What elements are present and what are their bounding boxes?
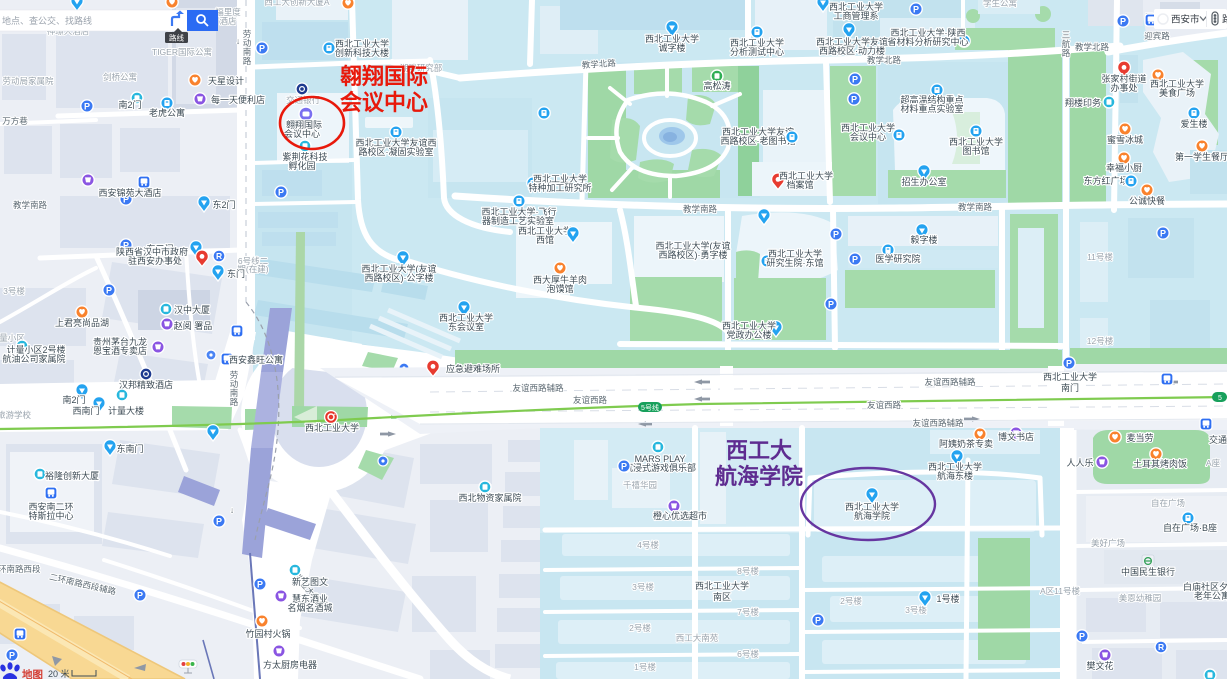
- svg-text:1号楼: 1号楼: [634, 662, 656, 672]
- svg-text:分析测试中心: 分析测试中心: [730, 46, 784, 57]
- svg-text:路: 路: [1222, 14, 1227, 26]
- svg-text:6号楼: 6号楼: [737, 649, 759, 659]
- svg-text:西路校区)·公字楼: 西路校区)·公字楼: [365, 272, 434, 283]
- svg-text:党政办公楼: 党政办公楼: [726, 329, 771, 340]
- svg-text:↓: ↓: [230, 505, 234, 515]
- svg-text:土耳其烤肉饭: 土耳其烤肉饭: [1133, 458, 1187, 469]
- svg-text:东2门: 东2门: [212, 199, 235, 210]
- svg-text:会议中心: 会议中心: [340, 90, 428, 115]
- svg-text:名烟名酒城: 名烟名酒城: [287, 602, 332, 613]
- svg-text:12号楼: 12号楼: [1087, 336, 1114, 346]
- svg-text:南门: 南门: [1061, 382, 1079, 393]
- svg-text:友谊西路辅路: 友谊西路辅路: [912, 418, 964, 428]
- svg-text:地点、查公交、找路线: 地点、查公交、找路线: [2, 15, 92, 26]
- svg-text:赵阅 署品: 赵阅 署品: [174, 320, 213, 331]
- svg-text:美恩幼稚园: 美恩幼稚园: [1119, 593, 1162, 603]
- svg-text:万方巷: 万方巷: [2, 116, 28, 126]
- svg-text:人人乐: 人人乐: [1066, 457, 1093, 468]
- svg-text:路线: 路线: [169, 33, 184, 43]
- svg-text:学生公寓: 学生公寓: [983, 0, 1017, 8]
- svg-text:2号楼: 2号楼: [629, 623, 651, 633]
- svg-text:教学南路: 教学南路: [683, 204, 718, 214]
- svg-text:汉中大厦: 汉中大厦: [174, 304, 210, 315]
- svg-text:友谊西路辅路: 友谊西路辅路: [512, 383, 564, 393]
- svg-text:地图: 地图: [22, 668, 43, 679]
- svg-text:竹园村火锅: 竹园村火锅: [245, 628, 290, 639]
- svg-text:蜜雪冰城: 蜜雪冰城: [1107, 134, 1143, 145]
- svg-text:航海东楼: 航海东楼: [937, 470, 973, 481]
- svg-text:8号楼: 8号楼: [737, 566, 759, 576]
- svg-text:友谊西路: 友谊西路: [573, 395, 608, 405]
- svg-text:东门: 东门: [227, 268, 245, 279]
- svg-text:工商管理系: 工商管理系: [833, 10, 878, 21]
- svg-text:劳动局家属院: 劳动局家属院: [2, 76, 54, 86]
- svg-text:图书馆: 图书馆: [962, 145, 989, 156]
- svg-text:TIGER国际公寓: TIGER国际公寓: [152, 47, 212, 57]
- svg-text:4号楼: 4号楼: [637, 540, 659, 550]
- svg-text:办事处: 办事处: [1110, 82, 1137, 93]
- svg-text:驻西安办事处: 驻西安办事处: [128, 255, 182, 266]
- svg-text:教学北路: 教学北路: [1075, 42, 1110, 52]
- svg-text:东方红广场: 东方红广场: [1083, 175, 1128, 186]
- svg-text:西路校区·动力楼: 西路校区·动力楼: [819, 45, 885, 56]
- svg-text:橙心优选超市: 橙心优选超市: [653, 510, 707, 521]
- svg-text:公诚快餐: 公诚快餐: [1129, 195, 1165, 206]
- svg-text:翔楼印务: 翔楼印务: [1065, 97, 1101, 108]
- svg-text:每一天便利店: 每一天便利店: [211, 94, 265, 105]
- svg-text:孵化园: 孵化园: [288, 160, 315, 171]
- svg-text:劳动南路: 劳动南路: [230, 370, 239, 407]
- svg-text:博文书店: 博文书店: [998, 431, 1034, 442]
- svg-text:1号楼: 1号楼: [936, 593, 959, 604]
- svg-text:迎宾路: 迎宾路: [1144, 31, 1170, 41]
- svg-text:会议中心: 会议中心: [284, 128, 320, 139]
- svg-text:教学南路: 教学南路: [13, 200, 48, 210]
- svg-text:3号楼: 3号楼: [3, 286, 25, 296]
- svg-text:特种加工研究所: 特种加工研究所: [528, 182, 591, 193]
- svg-text:应急避难场所: 应急避难场所: [446, 363, 500, 374]
- svg-text:友谊西路辅路: 友谊西路辅路: [924, 377, 976, 387]
- svg-text:↓: ↓: [236, 36, 240, 46]
- svg-text:西安锦苑大酒店: 西安锦苑大酒店: [98, 187, 161, 198]
- svg-text:西路校区)·勇字楼: 西路校区)·勇字楼: [659, 249, 728, 260]
- svg-text:20 米: 20 米: [48, 668, 70, 679]
- svg-text:航油公司家属院: 航油公司家属院: [2, 353, 65, 364]
- svg-text:11号楼: 11号楼: [1087, 252, 1113, 262]
- svg-text:教学南路: 教学南路: [958, 202, 993, 212]
- svg-text:招生办公室: 招生办公室: [901, 176, 946, 187]
- svg-text:中国民生银行: 中国民生银行: [1121, 566, 1175, 577]
- svg-text:第一学生餐厅: 第一学生餐厅: [1175, 151, 1227, 162]
- svg-text:航海学院: 航海学院: [715, 464, 803, 489]
- svg-text:爱生楼: 爱生楼: [1180, 118, 1207, 129]
- svg-text:档案馆: 档案馆: [786, 179, 813, 190]
- svg-text:西北工业大学: 西北工业大学: [305, 422, 359, 433]
- svg-text:上君亮尚品湖: 上君亮尚品湖: [55, 317, 109, 328]
- svg-text:阿姨奶茶专卖: 阿姨奶茶专卖: [939, 438, 993, 449]
- svg-text:新艺图文: 新艺图文: [292, 576, 328, 587]
- svg-text:7号楼: 7号楼: [737, 607, 759, 617]
- svg-text:研究生院·东馆: 研究生院·东馆: [767, 257, 824, 268]
- svg-text:泡馍馆: 泡馍馆: [546, 283, 573, 294]
- svg-text:毅字楼: 毅字楼: [910, 234, 937, 245]
- svg-text:特斯拉中心: 特斯拉中心: [28, 510, 73, 521]
- svg-text:A区11号楼: A区11号楼: [1040, 586, 1080, 596]
- svg-text:西安市: 西安市: [1171, 14, 1200, 26]
- svg-text:材料重点实验室: 材料重点实验室: [900, 103, 963, 114]
- svg-text:创新科技大楼: 创新科技大楼: [335, 47, 389, 58]
- svg-text:航海学院: 航海学院: [854, 510, 890, 521]
- svg-text:方太厨房电器: 方太厨房电器: [263, 659, 317, 670]
- svg-text:省材料分析研究中心: 省材料分析研究中心: [887, 36, 968, 47]
- svg-text:计量大楼: 计量大楼: [108, 405, 144, 416]
- svg-text:器制造工艺实验室: 器制造工艺实验室: [482, 215, 554, 226]
- svg-text:翱翔国际: 翱翔国际: [340, 64, 428, 89]
- svg-text:诚字楼: 诚字楼: [658, 42, 685, 53]
- svg-text:酒店: 酒店: [219, 16, 237, 26]
- svg-text:裕隆创新大厦: 裕隆创新大厦: [45, 470, 99, 481]
- svg-text:美好广场: 美好广场: [1091, 538, 1125, 548]
- svg-text:东会议室: 东会议室: [448, 321, 484, 332]
- svg-text:东南门: 东南门: [116, 443, 143, 454]
- svg-text:南2门: 南2门: [118, 99, 141, 110]
- svg-text:西北物资家属院: 西北物资家属院: [458, 492, 521, 503]
- svg-text:西工大南苑: 西工大南苑: [676, 633, 719, 643]
- svg-text:二环南路西段: 二环南路西段: [0, 564, 41, 574]
- svg-text:麦当劳: 麦当劳: [1126, 432, 1153, 443]
- svg-text:千禧华园: 千禧华园: [623, 480, 657, 490]
- svg-text:高松涛: 高松涛: [703, 80, 730, 91]
- svg-text:西工大: 西工大: [726, 438, 792, 463]
- svg-text:恩宝酒专卖店: 恩宝酒专卖店: [93, 345, 147, 356]
- svg-text:3号楼: 3号楼: [632, 582, 654, 592]
- svg-text:西馆: 西馆: [536, 234, 554, 245]
- svg-text:旅游学校: 旅游学校: [0, 410, 31, 420]
- svg-text:南区: 南区: [713, 591, 731, 602]
- svg-text:西安鑫旺公寓: 西安鑫旺公寓: [229, 354, 283, 365]
- svg-text:交通: 交通: [1209, 434, 1227, 445]
- svg-text:西工大创新大厦A: 西工大创新大厦A: [264, 0, 330, 7]
- svg-text:西北工业大学: 西北工业大学: [1043, 371, 1097, 382]
- svg-text:剑桥公寓: 剑桥公寓: [103, 72, 137, 82]
- svg-text:2号楼: 2号楼: [840, 596, 862, 606]
- svg-text:西南门: 西南门: [72, 405, 99, 416]
- svg-text:美食广场: 美食广场: [1159, 87, 1195, 98]
- svg-text:老年公寓: 老年公寓: [1194, 590, 1227, 601]
- svg-text:沉浸式游戏俱乐部: 沉浸式游戏俱乐部: [624, 462, 696, 473]
- svg-text:樊文花: 樊文花: [1086, 660, 1113, 671]
- svg-text:汉邦精致酒店: 汉邦精致酒店: [119, 379, 173, 390]
- svg-text:天星设计: 天星设计: [208, 75, 244, 86]
- svg-text:自在广场·B座: 自在广场·B座: [1163, 522, 1217, 533]
- svg-text:三航路: 三航路: [1062, 30, 1071, 58]
- svg-text:老虎公寓: 老虎公寓: [149, 107, 185, 118]
- svg-text:路校区·凝固实验室: 路校区·凝固实验室: [359, 146, 434, 157]
- svg-text:幸福小厨: 幸福小厨: [1106, 162, 1142, 173]
- svg-text:西路校区·老图书馆: 西路校区·老图书馆: [721, 135, 796, 146]
- svg-text:自在广场: 自在广场: [1151, 498, 1185, 508]
- svg-text:南2门: 南2门: [62, 394, 85, 405]
- svg-text:会议中心: 会议中心: [850, 131, 886, 142]
- svg-text:西北工业大学: 西北工业大学: [695, 580, 749, 591]
- svg-text:劳动南路: 劳动南路: [243, 29, 252, 66]
- svg-text:医学研究院: 医学研究院: [875, 253, 920, 264]
- svg-text:A座: A座: [1206, 458, 1221, 468]
- svg-text:5: 5: [1218, 395, 1222, 402]
- svg-text:5号线: 5号线: [641, 403, 659, 412]
- svg-text:教学北路: 教学北路: [867, 55, 902, 65]
- svg-text:友谊西路: 友谊西路: [867, 400, 902, 410]
